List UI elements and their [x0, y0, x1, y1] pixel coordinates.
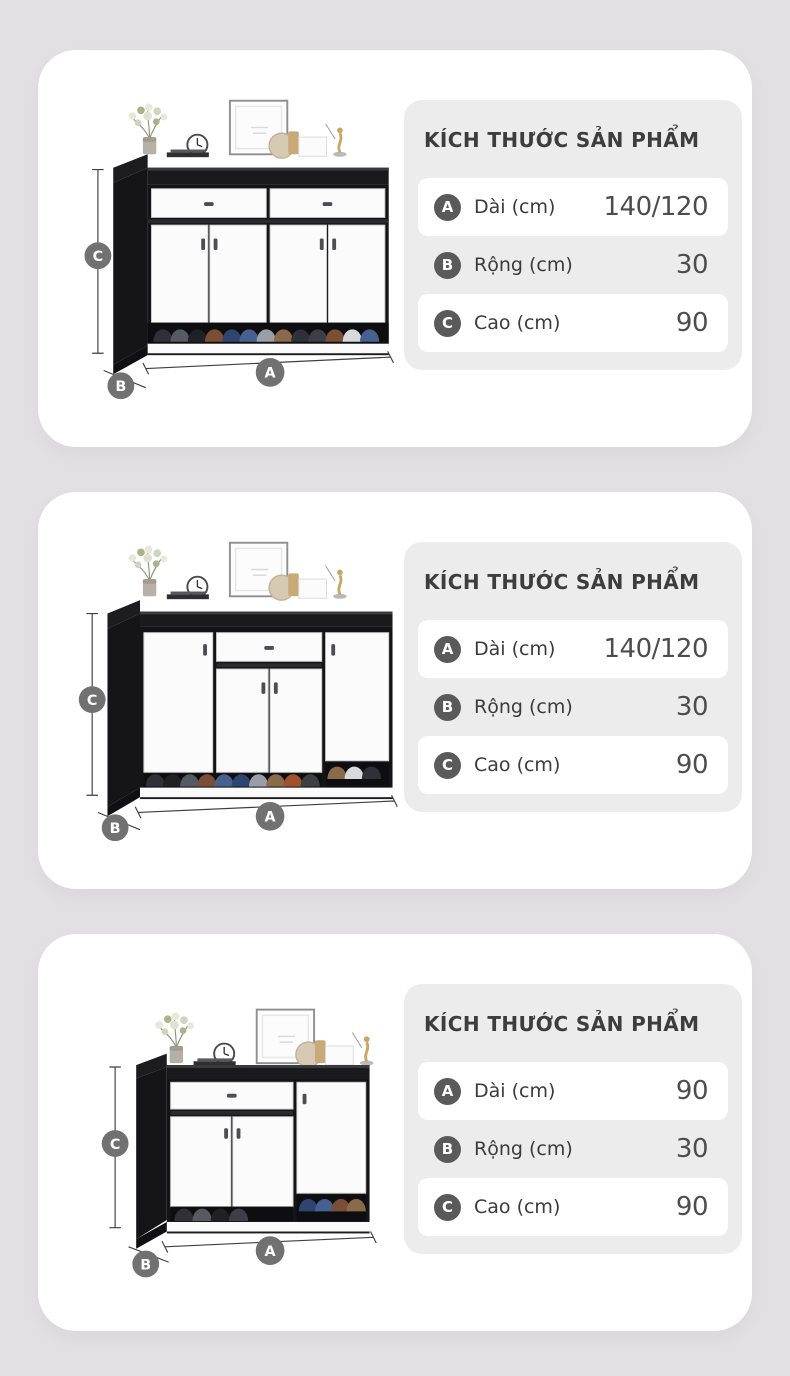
row-value-cao: 90 [676, 308, 712, 338]
dimension-row-dai: A Dài (cm) 140/120 [418, 620, 728, 678]
row-badge-b: B [434, 252, 461, 279]
svg-text:C: C [93, 248, 104, 264]
row-badge-b: B [434, 694, 461, 721]
dim-line-c: C [85, 169, 112, 353]
dimension-row-rong: B Rộng (cm) 30 [418, 236, 728, 294]
row-value-cao: 90 [676, 1192, 712, 1222]
cabinet-body [136, 1053, 369, 1248]
row-label-dai: Dài (cm) [474, 1080, 555, 1102]
svg-text:C: C [110, 1136, 121, 1152]
row-value-dai: 90 [676, 1076, 712, 1106]
product-panel-2: C A B KÍCH THƯỚC SẢN PHẨM A Dài (cm) 140… [38, 492, 752, 889]
row-badge-b: B [434, 1136, 461, 1163]
row-label-dai: Dài (cm) [474, 638, 555, 660]
row-value-dai: 140/120 [603, 192, 712, 222]
cabinet-illustration-3: C A B [52, 934, 404, 1331]
top-decor [129, 100, 347, 157]
row-label-rong: Rộng (cm) [474, 1138, 573, 1160]
svg-text:C: C [87, 692, 98, 708]
row-label-cao: Cao (cm) [474, 312, 560, 334]
product-panel-3: C A B KÍCH THƯỚC SẢN PHẨM A Dài (cm) 90 … [38, 934, 752, 1331]
row-value-rong: 30 [676, 250, 712, 280]
cabinet-body [107, 600, 392, 816]
row-label-cao: Cao (cm) [474, 1196, 560, 1218]
svg-text:B: B [140, 1257, 151, 1273]
cabinet-svg-small: C A B [52, 979, 404, 1287]
row-label-rong: Rộng (cm) [474, 696, 573, 718]
cabinet-illustration-1: C A B [52, 50, 404, 447]
dim-line-c: C [79, 613, 106, 795]
dim-line-a: A [143, 351, 394, 386]
dim-line-a: A [162, 1231, 376, 1264]
row-value-dai: 140/120 [603, 634, 712, 664]
panel-title: KÍCH THƯỚC SẢN PHẨM [424, 570, 722, 594]
row-label-cao: Cao (cm) [474, 754, 560, 776]
top-decor [129, 542, 347, 599]
product-panel-1: C A B KÍCH THƯỚC SẢN PHẨM A Dài (cm) 140… [38, 50, 752, 447]
row-value-cao: 90 [676, 750, 712, 780]
cabinet-illustration-2: C A B [52, 492, 404, 889]
dimension-row-cao: C Cao (cm) 90 [418, 294, 728, 352]
cabinet-svg-3-section: C A B [52, 537, 404, 845]
dim-line-b: B [104, 370, 146, 399]
svg-text:A: A [265, 809, 277, 825]
dimension-info-box: KÍCH THƯỚC SẢN PHẨM A Dài (cm) 90 B Rộng… [404, 984, 742, 1254]
dimension-row-rong: B Rộng (cm) 30 [418, 678, 728, 736]
dimension-info-box: KÍCH THƯỚC SẢN PHẨM A Dài (cm) 140/120 B… [404, 542, 742, 812]
dimension-row-cao: C Cao (cm) 90 [418, 736, 728, 794]
svg-text:A: A [265, 365, 277, 381]
dim-line-b: B [98, 812, 140, 841]
row-badge-a: A [434, 194, 461, 221]
row-label-dai: Dài (cm) [474, 196, 555, 218]
dimension-info-box: KÍCH THƯỚC SẢN PHẨM A Dài (cm) 140/120 B… [404, 100, 742, 370]
dimension-row-dai: A Dài (cm) 90 [418, 1062, 728, 1120]
dim-line-b: B [129, 1246, 169, 1277]
row-badge-c: C [434, 310, 461, 337]
cabinet-body [113, 154, 388, 374]
row-value-rong: 30 [676, 692, 712, 722]
cabinet-svg-2-section: C A B [52, 95, 404, 403]
svg-text:B: B [115, 379, 126, 395]
panel-title: KÍCH THƯỚC SẢN PHẨM [424, 1012, 722, 1036]
svg-text:A: A [265, 1243, 277, 1259]
dimension-row-dai: A Dài (cm) 140/120 [418, 178, 728, 236]
row-badge-c: C [434, 752, 461, 779]
panel-title: KÍCH THƯỚC SẢN PHẨM [424, 128, 722, 152]
top-decor [155, 1009, 373, 1066]
row-badge-a: A [434, 636, 461, 663]
row-badge-a: A [434, 1078, 461, 1105]
dimension-row-rong: B Rộng (cm) 30 [418, 1120, 728, 1178]
dimension-row-cao: C Cao (cm) 90 [418, 1178, 728, 1236]
row-value-rong: 30 [676, 1134, 712, 1164]
row-label-rong: Rộng (cm) [474, 254, 573, 276]
dim-line-a: A [135, 795, 397, 830]
dim-line-c: C [102, 1067, 129, 1228]
svg-text:B: B [110, 821, 121, 837]
row-badge-c: C [434, 1194, 461, 1221]
